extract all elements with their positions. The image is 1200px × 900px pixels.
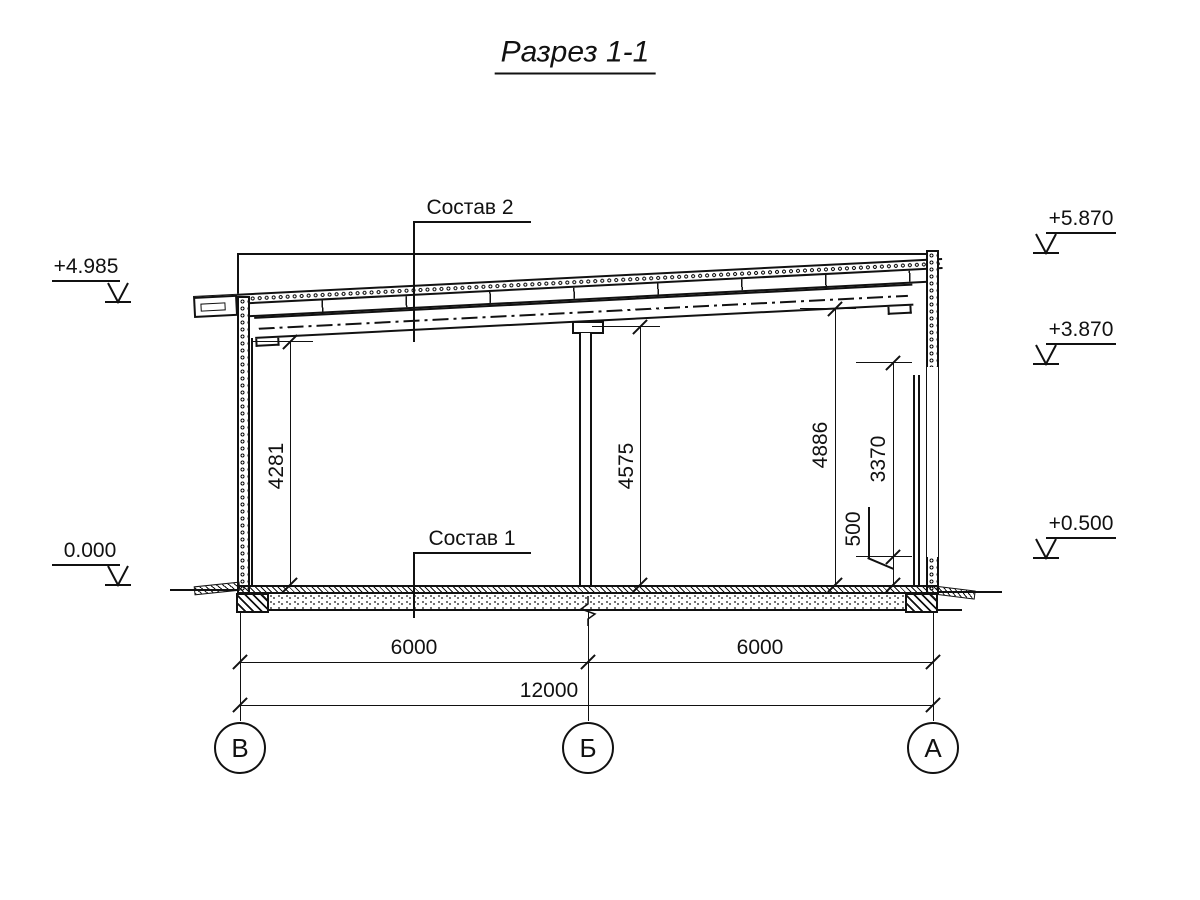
elevation-left-top-value: +4.985 bbox=[52, 255, 121, 279]
elevation-arrow-icon bbox=[1031, 232, 1061, 256]
beam-bracket-right bbox=[887, 306, 911, 315]
elevation-right-middle-value: +3.870 bbox=[1047, 318, 1116, 342]
axis-label: В bbox=[231, 733, 248, 764]
dim-4281-extension bbox=[253, 341, 313, 342]
dim-4575-extension bbox=[592, 326, 660, 327]
roof-eave-fascia bbox=[193, 295, 238, 318]
dim-6000-right-value: 6000 bbox=[735, 636, 786, 660]
dim-12000-line bbox=[240, 705, 933, 706]
top-reference-line bbox=[237, 253, 926, 255]
right-wall-window-band bbox=[926, 367, 939, 557]
left-wall-inner-face-line bbox=[251, 338, 253, 585]
left-wall-top-extension-line bbox=[237, 253, 239, 297]
dim-4281-value: 4281 bbox=[265, 441, 289, 492]
beam-bracket-left bbox=[255, 338, 279, 347]
apron-right bbox=[937, 586, 976, 600]
foundation-left bbox=[236, 593, 269, 613]
break-symbol-icon bbox=[579, 596, 597, 626]
section-drawing-canvas: Разрез 1-1 Состав 2 Состав 1 bbox=[0, 0, 1200, 900]
elevation-arrow-icon bbox=[1031, 343, 1061, 367]
axis-bubble-b: Б bbox=[562, 722, 614, 774]
roof-composition-leader bbox=[413, 221, 415, 342]
dim-4575-value: 4575 bbox=[615, 441, 639, 492]
dim-3370-extension-top bbox=[856, 362, 912, 363]
elevation-left-bottom-value: 0.000 bbox=[62, 539, 119, 563]
floor-composition-label: Состав 1 bbox=[426, 527, 517, 551]
dim-3370-value: 3370 bbox=[867, 434, 891, 485]
axis-label: Б bbox=[579, 733, 596, 764]
axis-bubble-a: А bbox=[907, 722, 959, 774]
roof-composition-label: Состав 2 bbox=[424, 196, 515, 220]
roof-composition-underline bbox=[413, 221, 531, 223]
dim-4886-value: 4886 bbox=[809, 420, 833, 471]
apron-left bbox=[194, 582, 241, 596]
dim-12000-value: 12000 bbox=[518, 679, 580, 703]
elevation-arrow-icon bbox=[103, 564, 133, 588]
dim-500-leader-vertical bbox=[868, 507, 870, 558]
dim-3370-line bbox=[893, 363, 894, 557]
right-column-flange-line-1 bbox=[913, 375, 915, 585]
right-wall-upper-panel bbox=[926, 250, 939, 367]
roof-eave-fascia-inner bbox=[200, 302, 225, 311]
roof-assembly bbox=[193, 258, 945, 352]
elevation-arrow-icon bbox=[103, 281, 133, 305]
elevation-right-bottom-value: +0.500 bbox=[1047, 512, 1116, 536]
axis-label: А bbox=[924, 733, 941, 764]
dim-3370-extension-bottom bbox=[856, 556, 912, 557]
dim-4575-line bbox=[640, 327, 641, 585]
floor-bottom-extension-right bbox=[938, 609, 962, 611]
floor-composition-underline bbox=[413, 552, 531, 554]
dim-4886-line bbox=[835, 309, 836, 585]
dim-500-value: 500 bbox=[842, 509, 866, 548]
right-column-flange-line-2 bbox=[918, 375, 920, 585]
elevation-right-top-value: +5.870 bbox=[1047, 207, 1116, 231]
dim-4281-line bbox=[290, 342, 291, 585]
foundation-right bbox=[905, 593, 938, 613]
axis-bubble-v: В bbox=[214, 722, 266, 774]
middle-column bbox=[579, 333, 592, 585]
dim-6000-left-value: 6000 bbox=[389, 636, 440, 660]
elevation-arrow-icon bbox=[1031, 537, 1061, 561]
floor-composition-leader bbox=[413, 552, 415, 618]
left-wall bbox=[237, 296, 250, 592]
drawing-title: Разрез 1-1 bbox=[495, 36, 656, 75]
dim-4886-extension bbox=[800, 308, 856, 309]
